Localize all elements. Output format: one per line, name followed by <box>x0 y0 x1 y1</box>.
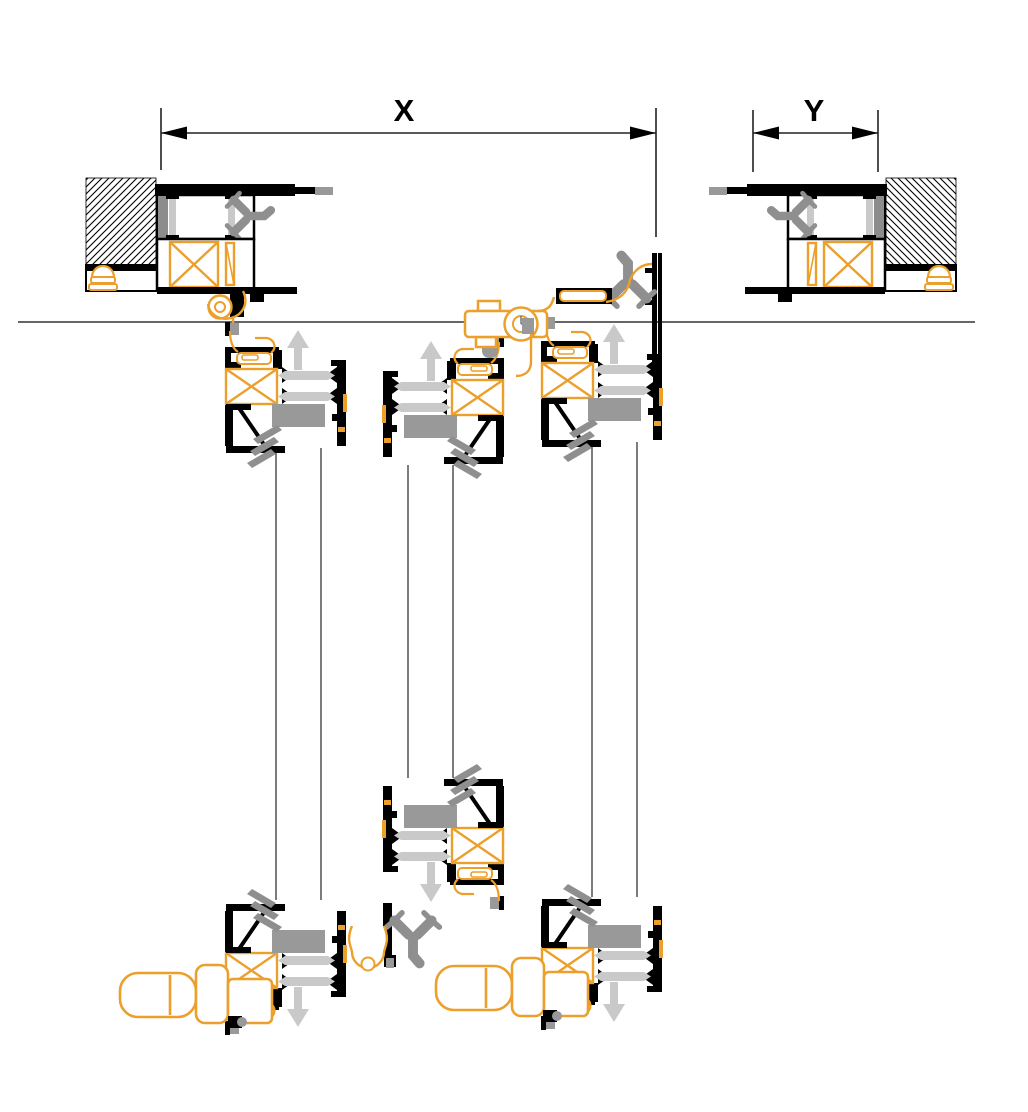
sash-cluster-bottom-middle <box>380 764 504 910</box>
dimension-x-arrow-left <box>161 127 187 140</box>
dimension-x-label: X <box>394 93 415 128</box>
diagram-canvas: X Y <box>0 0 1028 1112</box>
wall-and-frame-right <box>709 178 956 302</box>
sash-cluster-top-right <box>541 316 665 462</box>
dimension-y-arrow-left <box>753 127 779 140</box>
dimension-y-arrow-right <box>852 127 878 140</box>
dimension-y-label: Y <box>804 93 825 128</box>
mullion-extension-bottom-middle <box>383 903 439 968</box>
bottom-pivot-hinge <box>349 926 387 971</box>
sash-cluster-top-left <box>225 322 349 468</box>
dimension-x-arrow-right <box>630 127 656 140</box>
wall-and-frame-left <box>86 178 333 302</box>
